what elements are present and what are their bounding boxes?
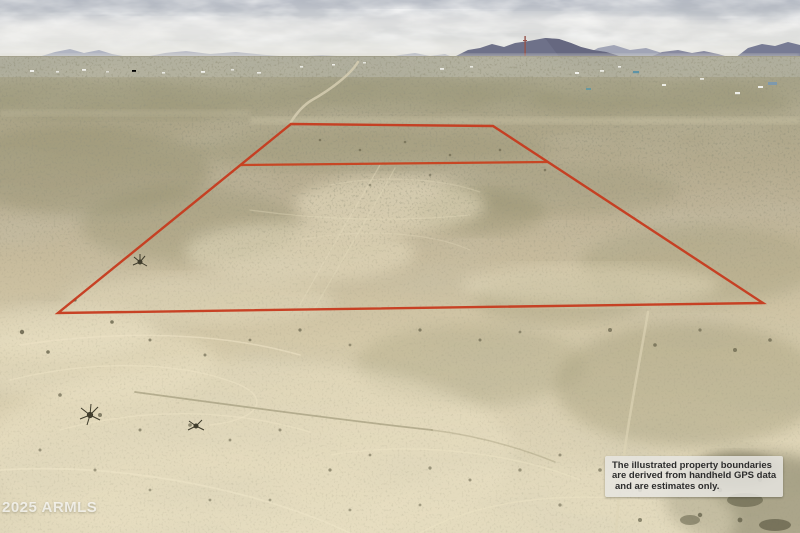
aerial-photo: 2025 ARMLS The illustrated property boun… — [0, 0, 800, 533]
aerial-photo-scene — [0, 0, 800, 533]
disclaimer-box: The illustrated property boundaries are … — [605, 456, 783, 497]
armls-watermark: 2025 ARMLS — [2, 499, 97, 516]
disclaimer-line-3: and are estimates only. — [612, 482, 777, 492]
